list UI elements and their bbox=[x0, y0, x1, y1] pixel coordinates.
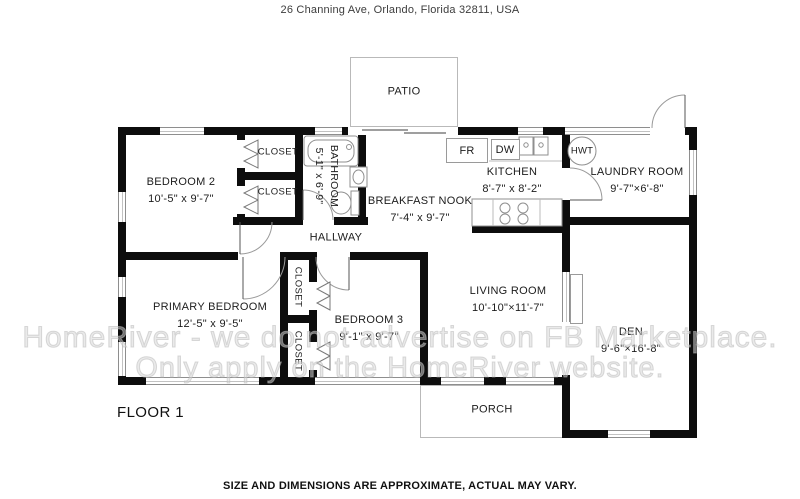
room-dims: 5'-1" x 6'-9" bbox=[311, 145, 326, 207]
opening-closet-b bbox=[237, 186, 245, 214]
room-name: CLOSET bbox=[293, 331, 304, 371]
room-name: KITCHEN bbox=[482, 164, 541, 181]
room-name: LAUNDRY ROOM bbox=[590, 164, 683, 181]
room-name: BEDROOM 3 bbox=[335, 312, 404, 329]
wall-closet-column-divider bbox=[280, 315, 317, 323]
floor-plan-page: 26 Channing Ave, Orlando, Florida 32811,… bbox=[0, 0, 800, 499]
window-bedroom2-top bbox=[160, 127, 204, 135]
window-primary-left-1 bbox=[118, 277, 126, 297]
patio-slider-panel-2 bbox=[404, 132, 446, 134]
address-header: 26 Channing Ave, Orlando, Florida 32811,… bbox=[0, 4, 800, 16]
room-label-porch: PORCH bbox=[471, 402, 512, 419]
room-dims: 10'-5" x 9'-7" bbox=[147, 191, 216, 208]
room-label-patio: PATIO bbox=[388, 84, 421, 101]
stove-icon bbox=[472, 199, 562, 226]
opening-bathroom-door bbox=[303, 217, 334, 225]
wall-closet-divider bbox=[245, 172, 295, 180]
bifold-closet-d bbox=[317, 342, 330, 370]
dishwasher-label: DW bbox=[496, 144, 515, 156]
disclaimer-footer: SIZE AND DIMENSIONS ARE APPROXIMATE, ACT… bbox=[0, 480, 800, 492]
room-label-kitchen: KITCHEN 8'-7" x 8'-2" bbox=[482, 164, 541, 198]
room-label-closet-d: CLOSET bbox=[290, 331, 307, 371]
room-name: PATIO bbox=[388, 86, 421, 98]
room-label-primary-bedroom: PRIMARY BEDROOM 12'-5" x 9'-5" bbox=[153, 299, 267, 333]
opening-livingroom-den bbox=[562, 322, 570, 375]
room-name: HALLWAY bbox=[310, 232, 363, 244]
room-name: BATHROOM bbox=[326, 145, 341, 207]
room-label-bathroom: BATHROOM 5'-1" x 6'-9" bbox=[311, 145, 341, 207]
room-dims: 9'-7"×6'-8" bbox=[590, 181, 683, 198]
room-label-closet-b: CLOSET bbox=[258, 184, 298, 201]
room-name: CLOSET bbox=[258, 187, 298, 198]
room-label-den: DEN 9'-6"×16'-8" bbox=[601, 324, 661, 358]
room-label-bedroom3: BEDROOM 3 9'-1" x 9'-7" bbox=[335, 312, 404, 346]
opening-bedroom3-door bbox=[317, 252, 350, 260]
room-label-closet-c: CLOSET bbox=[290, 267, 307, 307]
kitchen-sink-icon bbox=[519, 137, 548, 155]
patio-slider-panel-1 bbox=[362, 129, 408, 131]
room-dims: 10'-10"×11'-7" bbox=[470, 300, 547, 317]
window-den-left bbox=[562, 272, 570, 322]
room-dims: 7'-4" x 9'-7" bbox=[368, 210, 472, 227]
room-name: CLOSET bbox=[258, 147, 298, 158]
room-dims: 9'-1" x 9'-7" bbox=[335, 329, 404, 346]
room-label-bedroom2: BEDROOM 2 10'-5" x 9'-7" bbox=[147, 174, 216, 208]
window-den-bottom bbox=[608, 430, 650, 438]
window-livingroom-bottom-2 bbox=[506, 377, 554, 385]
bifold-closet-c bbox=[317, 282, 330, 310]
wall-laundry-den-divider bbox=[562, 217, 697, 225]
window-primary-left-2 bbox=[118, 342, 126, 376]
wall-bathroom-right bbox=[358, 135, 366, 225]
window-bathroom-top bbox=[315, 127, 342, 135]
room-dims: 12'-5" x 9'-5" bbox=[153, 316, 267, 333]
room-dims: 9'-6"×16'-8" bbox=[601, 341, 661, 358]
room-dims: 8'-7" x 8'-2" bbox=[482, 181, 541, 198]
window-primary-bottom bbox=[146, 377, 259, 385]
opening-closet-c bbox=[309, 282, 317, 310]
opening-closet-a bbox=[237, 140, 245, 168]
room-label-hallway: HALLWAY bbox=[310, 230, 363, 247]
room-name: BEDROOM 2 bbox=[147, 174, 216, 191]
opening-primary-door bbox=[238, 252, 280, 260]
fridge-label: FR bbox=[459, 145, 474, 157]
wall-kitchen-bottom bbox=[472, 226, 570, 233]
wall-hallway-top bbox=[233, 217, 368, 225]
room-label-breakfast-nook: BREAKFAST NOOK 7'-4" x 9'-7" bbox=[368, 193, 472, 227]
window-den-left-frame bbox=[570, 274, 583, 324]
window-kitchen-top bbox=[518, 127, 543, 135]
room-name: PORCH bbox=[471, 404, 512, 416]
door-arc-bedroom3 bbox=[316, 257, 349, 290]
window-laundry-top bbox=[565, 127, 650, 135]
window-laundry-right bbox=[689, 150, 697, 195]
room-name: BREAKFAST NOOK bbox=[368, 193, 472, 210]
room-name: DEN bbox=[601, 324, 661, 341]
room-name: PRIMARY BEDROOM bbox=[153, 299, 267, 316]
bifold-closet-a bbox=[244, 140, 258, 168]
opening-closet-d bbox=[309, 342, 317, 370]
room-name: LIVING ROOM bbox=[470, 283, 547, 300]
bifold-closet-b bbox=[244, 186, 258, 214]
room-label-closet-a: CLOSET bbox=[258, 144, 298, 161]
door-arc-bedroom2 bbox=[240, 222, 272, 254]
room-label-laundry: LAUNDRY ROOM 9'-7"×6'-8" bbox=[590, 164, 683, 198]
wall-bedroom3-right bbox=[420, 252, 428, 385]
opening-kitchen-laundry-door bbox=[562, 168, 570, 200]
window-livingroom-bottom-1 bbox=[441, 377, 484, 385]
window-bedroom2-left bbox=[118, 192, 126, 222]
room-name: CLOSET bbox=[293, 267, 304, 307]
floor-label: FLOOR 1 bbox=[117, 404, 184, 421]
water-heater-label: HWT bbox=[571, 146, 593, 157]
room-label-living-room: LIVING ROOM 10'-10"×11'-7" bbox=[470, 283, 547, 317]
door-arc-laundry-exterior bbox=[652, 95, 685, 128]
window-bedroom3-bottom bbox=[315, 377, 420, 385]
door-arc-primary-bedroom bbox=[243, 257, 285, 299]
opening-laundry-entry bbox=[650, 127, 685, 135]
